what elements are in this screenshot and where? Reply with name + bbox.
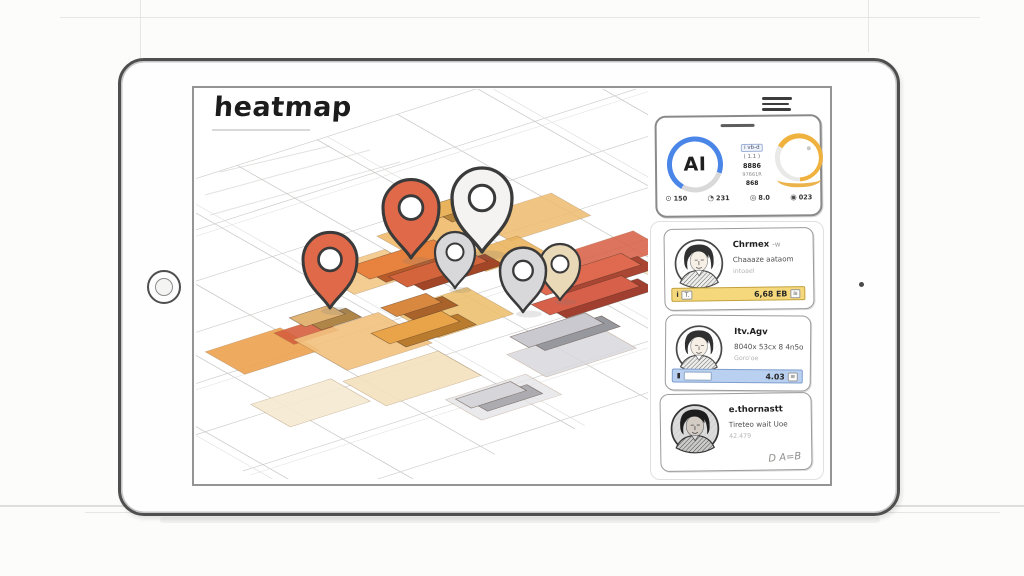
sketch-canvas: heatmap <box>0 0 1024 576</box>
card-metric-bar[interactable]: ▮ 4.03 ≋ <box>672 368 803 383</box>
clock-icon: ◔ <box>707 193 714 202</box>
ai-progress-ring: AI <box>667 136 724 193</box>
card-title-suffix: -w <box>772 240 780 248</box>
card-title: e.thornastt <box>729 404 783 415</box>
user-card-1[interactable]: Chrmex -w Chaaaze aataom intoael i T. 6,… <box>663 227 814 311</box>
metric-value: 6,68 EB <box>754 289 787 298</box>
card-title: Chrmex <box>733 240 770 251</box>
stats-row: ⊙ 150 ◔ 231 ◎ 8.0 ◉ 023 <box>665 192 812 203</box>
ai-stats-panel: AI i vb-d ( 1.1 ) 8886 97661R 868 ⊙ 150 … <box>654 114 822 218</box>
signature-scribble: D A=B <box>768 451 802 465</box>
user-card-2[interactable]: Itv.Agv 8040x 53cx 8 4n5o Goro'oe ▮ 4.03… <box>665 314 812 391</box>
card-metric-bar[interactable]: i T. 6,68 EB ≋ <box>671 286 805 302</box>
gauge-arc <box>777 171 821 187</box>
panel-handle <box>721 124 755 127</box>
stat-item[interactable]: ◉ 023 <box>790 192 812 201</box>
avatar <box>673 237 726 290</box>
metric-tag-icon: ≋ <box>788 372 798 381</box>
gauge-icon: ◎ <box>750 193 757 202</box>
user-card-3[interactable]: e.thornastt Tireteo wait Uoe 42.479 D A=… <box>659 392 812 472</box>
stat-value: 150 <box>674 194 688 202</box>
card-line3: Goro'oe <box>734 355 759 362</box>
readout-chip: i vb-d <box>741 144 763 152</box>
avatar <box>674 323 724 373</box>
ai-badge: AI <box>683 153 706 175</box>
menu-icon[interactable] <box>762 97 792 114</box>
heatmap-map[interactable] <box>0 0 1024 576</box>
bar-icon: i <box>676 291 679 299</box>
bar-icon: ▮ <box>677 371 681 379</box>
globe-icon: ◉ <box>790 192 797 201</box>
stat-value: 231 <box>716 194 730 202</box>
stat-value: 023 <box>799 193 813 201</box>
stat-item[interactable]: ⊙ 150 <box>665 194 687 203</box>
gauge-tick <box>807 146 811 150</box>
metric-value: 4.03 <box>765 372 784 381</box>
card-line2: Tireteo wait Uoe <box>729 419 788 429</box>
map-pin-orange-1[interactable] <box>303 232 357 308</box>
metric-tag-icon: ≋ <box>790 289 800 298</box>
panel-readout: i vb-d ( 1.1 ) 8886 97661R 868 <box>731 134 774 187</box>
stat-value: 8.0 <box>758 193 770 201</box>
bar-progress-box <box>684 371 712 380</box>
dial-icon: ⊙ <box>665 194 671 203</box>
stat-item[interactable]: ◎ 8.0 <box>750 193 770 202</box>
card-line3: 42.479 <box>729 433 751 440</box>
avatar <box>669 402 722 455</box>
card-line2: Chaaaze aataom <box>733 254 794 264</box>
card-line3: intoael <box>733 268 755 275</box>
card-title: Itv.Agv <box>734 327 768 337</box>
stat-item[interactable]: ◔ 231 <box>707 193 729 202</box>
card-line2: 8040x 53cx 8 4n5o <box>734 342 803 352</box>
bar-tag: T. <box>682 290 693 299</box>
